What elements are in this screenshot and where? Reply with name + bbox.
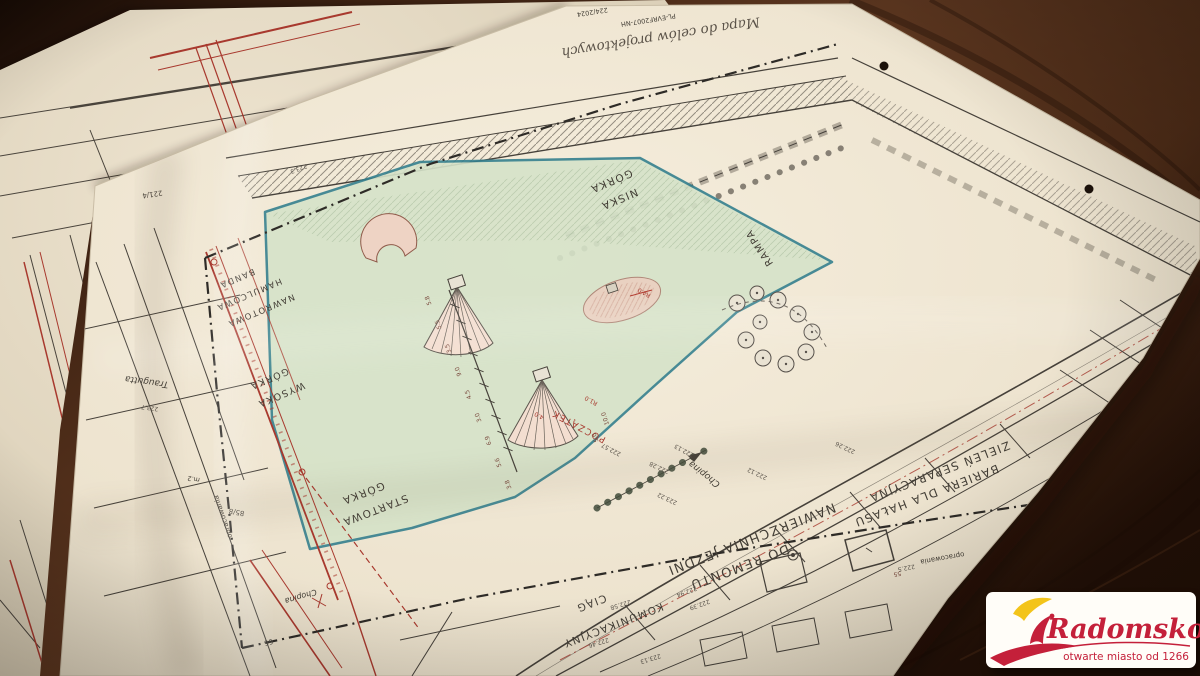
radomsko-logo-card: Radomsko otwarte miasto od 1266 (986, 592, 1200, 674)
scene-svg: Mapa do celów projektowych PL-EVRF2007-N… (0, 0, 1200, 676)
photo-scene: Mapa do celów projektowych PL-EVRF2007-N… (0, 0, 1200, 676)
logo-brand-text: Radomsko (1046, 614, 1200, 645)
logo-tagline-text: otwarte miasto od 1266 (1063, 651, 1189, 663)
vignette-overlay (0, 0, 1200, 676)
